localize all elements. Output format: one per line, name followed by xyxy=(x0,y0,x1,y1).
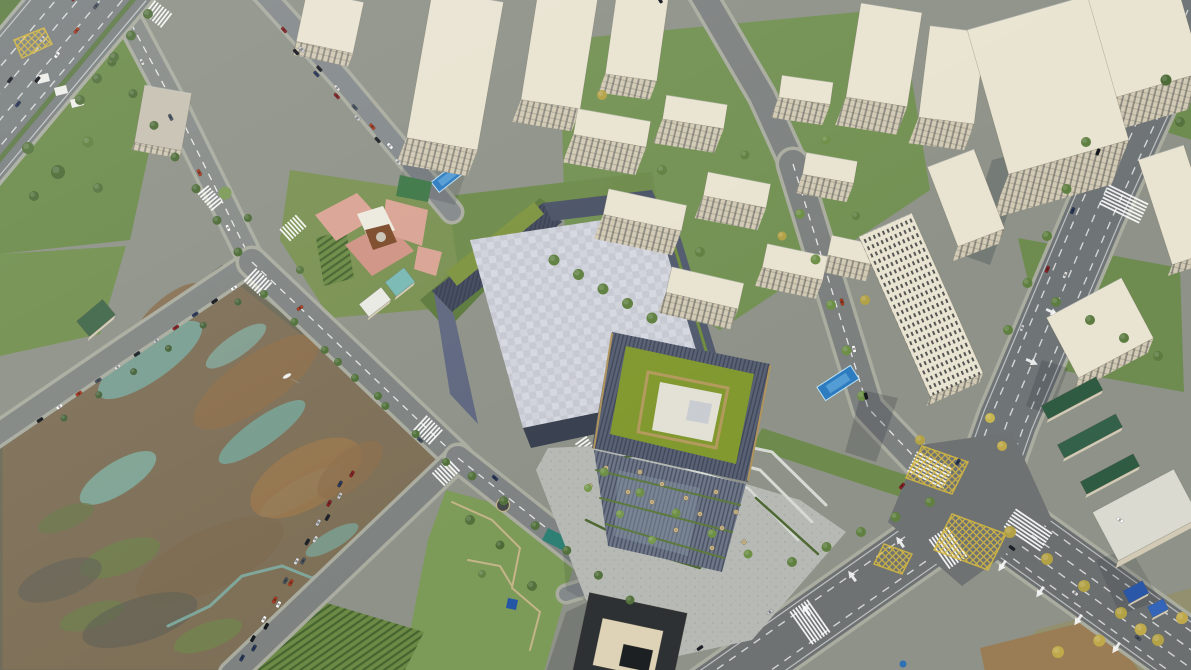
haze-overlay xyxy=(0,0,1191,670)
aerial-photo-stage xyxy=(0,0,1191,670)
atmosphere xyxy=(0,0,1191,670)
aerial-photograph xyxy=(0,0,1191,670)
